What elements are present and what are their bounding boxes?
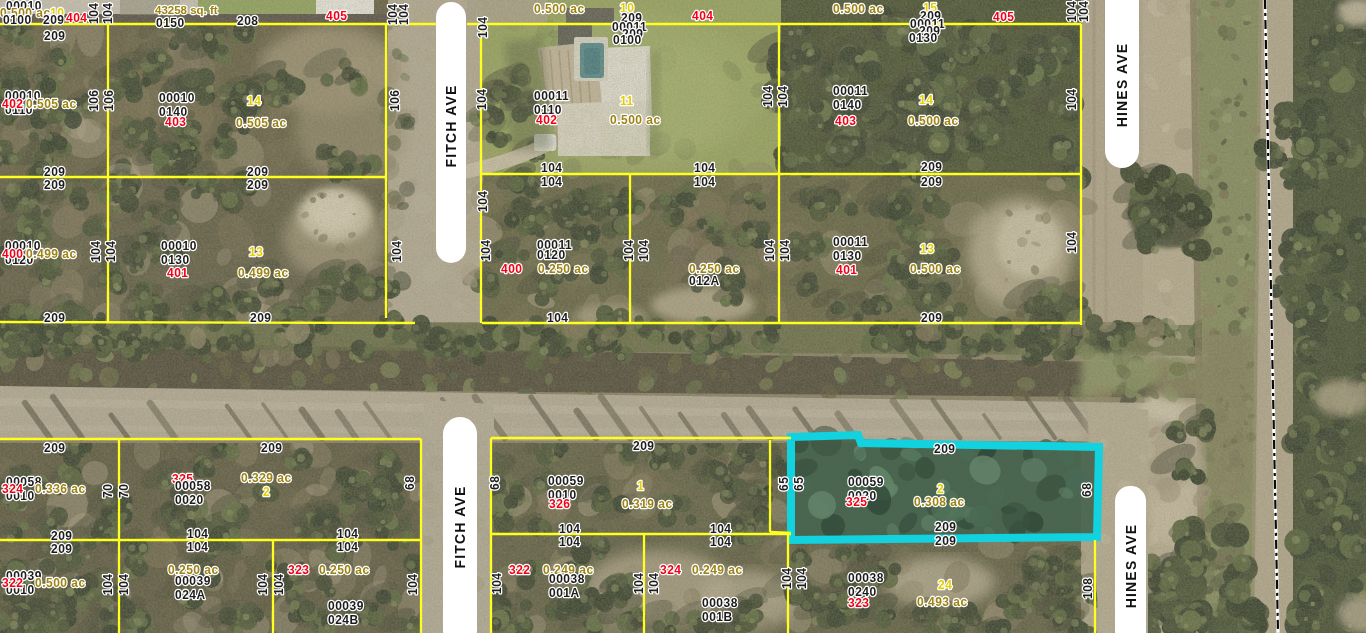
svg-text:001A: 001A xyxy=(549,586,580,600)
svg-text:13: 13 xyxy=(249,245,263,259)
svg-text:104: 104 xyxy=(337,527,359,541)
svg-text:405: 405 xyxy=(993,10,1015,24)
svg-text:104: 104 xyxy=(694,161,716,175)
svg-text:104: 104 xyxy=(710,535,732,549)
svg-text:0.505 ac: 0.505 ac xyxy=(236,116,287,130)
svg-text:209: 209 xyxy=(247,178,269,192)
svg-text:403: 403 xyxy=(835,114,857,128)
svg-text:104: 104 xyxy=(476,190,490,212)
svg-text:401: 401 xyxy=(836,263,858,277)
svg-text:209: 209 xyxy=(44,165,66,179)
svg-text:324: 324 xyxy=(2,482,24,496)
svg-text:65: 65 xyxy=(777,477,791,491)
svg-text:0.500 ac: 0.500 ac xyxy=(908,114,959,128)
svg-text:104: 104 xyxy=(647,572,661,594)
svg-text:0.500 ac: 0.500 ac xyxy=(534,2,585,16)
svg-text:104: 104 xyxy=(1065,88,1079,110)
svg-text:0.250 ac: 0.250 ac xyxy=(319,563,370,577)
svg-text:68: 68 xyxy=(1080,483,1094,497)
svg-text:104: 104 xyxy=(490,572,504,594)
svg-text:00038: 00038 xyxy=(848,571,884,585)
svg-text:001B: 001B xyxy=(702,610,733,624)
svg-text:14: 14 xyxy=(919,93,933,107)
svg-text:404: 404 xyxy=(692,9,714,23)
svg-text:024B: 024B xyxy=(328,613,359,627)
svg-text:0100: 0100 xyxy=(3,13,32,27)
svg-text:104: 104 xyxy=(479,239,493,261)
svg-text:70: 70 xyxy=(101,484,115,498)
svg-text:11: 11 xyxy=(620,94,634,108)
svg-text:404: 404 xyxy=(66,11,88,25)
svg-text:00011: 00011 xyxy=(534,89,569,103)
svg-text:70: 70 xyxy=(117,484,131,498)
svg-text:322: 322 xyxy=(509,563,531,577)
svg-text:0.505 ac: 0.505 ac xyxy=(26,97,77,111)
svg-text:323: 323 xyxy=(288,563,310,577)
svg-text:00039: 00039 xyxy=(175,574,211,588)
svg-text:104: 104 xyxy=(1065,231,1079,253)
svg-text:0.250 ac: 0.250 ac xyxy=(538,262,589,276)
svg-text:00010: 00010 xyxy=(161,239,197,253)
svg-text:209: 209 xyxy=(43,13,65,27)
svg-text:325: 325 xyxy=(846,495,868,509)
svg-text:104: 104 xyxy=(632,572,646,594)
svg-text:209: 209 xyxy=(633,439,655,453)
svg-text:68: 68 xyxy=(488,476,502,490)
svg-text:209: 209 xyxy=(250,311,272,325)
svg-text:0.493 ac: 0.493 ac xyxy=(917,595,968,609)
svg-text:2: 2 xyxy=(937,482,944,496)
svg-text:0120: 0120 xyxy=(537,248,566,262)
svg-text:209: 209 xyxy=(261,441,283,455)
svg-text:403: 403 xyxy=(165,115,187,129)
svg-text:0.499 ac: 0.499 ac xyxy=(238,266,289,280)
svg-text:326: 326 xyxy=(549,497,571,511)
svg-text:0.500 ac: 0.500 ac xyxy=(833,2,884,16)
svg-text:104: 104 xyxy=(763,239,777,261)
svg-text:0.329 ac: 0.329 ac xyxy=(241,471,292,485)
svg-text:104: 104 xyxy=(475,88,489,110)
svg-text:209: 209 xyxy=(247,165,269,179)
svg-text:0100: 0100 xyxy=(613,33,642,47)
svg-text:402: 402 xyxy=(2,97,24,111)
svg-text:400: 400 xyxy=(2,247,24,261)
svg-text:104: 104 xyxy=(547,311,569,325)
svg-text:104: 104 xyxy=(637,239,651,261)
svg-text:400: 400 xyxy=(501,262,523,276)
svg-text:104: 104 xyxy=(1077,0,1091,22)
svg-text:108: 108 xyxy=(1081,577,1095,599)
svg-text:0.336 ac: 0.336 ac xyxy=(35,482,86,496)
svg-text:104: 104 xyxy=(187,527,209,541)
svg-text:209: 209 xyxy=(51,529,73,543)
svg-text:323: 323 xyxy=(848,596,870,610)
svg-text:104: 104 xyxy=(541,175,563,189)
svg-text:0.499 ac: 0.499 ac xyxy=(26,247,77,261)
svg-text:0140: 0140 xyxy=(833,98,862,112)
svg-text:104: 104 xyxy=(104,240,118,262)
svg-text:104: 104 xyxy=(761,85,775,107)
svg-text:104: 104 xyxy=(187,540,209,554)
svg-text:0.249 ac: 0.249 ac xyxy=(692,563,743,577)
svg-text:209: 209 xyxy=(921,175,943,189)
svg-text:0.308 ac: 0.308 ac xyxy=(914,495,965,509)
svg-text:012A: 012A xyxy=(689,274,720,288)
svg-text:024A: 024A xyxy=(175,588,206,602)
svg-text:0020: 0020 xyxy=(175,493,204,507)
svg-text:0150: 0150 xyxy=(156,16,185,30)
svg-text:209: 209 xyxy=(44,311,66,325)
svg-text:209: 209 xyxy=(44,441,66,455)
svg-text:104: 104 xyxy=(622,239,636,261)
svg-text:104: 104 xyxy=(101,573,115,595)
svg-text:324: 324 xyxy=(660,563,682,577)
svg-text:104: 104 xyxy=(476,16,490,38)
svg-text:104: 104 xyxy=(337,540,359,554)
svg-text:104: 104 xyxy=(397,3,411,25)
svg-text:209: 209 xyxy=(44,178,66,192)
svg-text:00038: 00038 xyxy=(549,572,585,586)
svg-text:00011: 00011 xyxy=(833,84,868,98)
svg-text:209: 209 xyxy=(934,442,956,456)
svg-text:104: 104 xyxy=(778,239,792,261)
svg-text:209: 209 xyxy=(921,311,943,325)
svg-text:00059: 00059 xyxy=(548,474,584,488)
svg-text:209: 209 xyxy=(921,160,943,174)
svg-text:00059: 00059 xyxy=(848,475,884,489)
svg-text:0130: 0130 xyxy=(909,31,938,45)
svg-text:2: 2 xyxy=(263,485,270,499)
svg-text:FITCH AVE: FITCH AVE xyxy=(452,485,468,568)
svg-text:65: 65 xyxy=(792,477,806,491)
svg-text:HINES AVE: HINES AVE xyxy=(1114,43,1130,128)
svg-text:106: 106 xyxy=(87,89,101,111)
svg-text:104: 104 xyxy=(795,567,809,589)
svg-text:0.500 ac: 0.500 ac xyxy=(35,576,86,590)
svg-text:104: 104 xyxy=(87,2,101,24)
svg-text:106: 106 xyxy=(388,89,402,111)
svg-text:0.500 ac: 0.500 ac xyxy=(910,262,961,276)
svg-text:104: 104 xyxy=(101,2,115,24)
svg-text:1: 1 xyxy=(637,479,644,493)
svg-text:104: 104 xyxy=(117,573,131,595)
svg-text:0.319 ac: 0.319 ac xyxy=(622,497,673,511)
svg-text:104: 104 xyxy=(541,161,563,175)
svg-text:104: 104 xyxy=(559,535,581,549)
svg-text:104: 104 xyxy=(272,573,286,595)
svg-text:402: 402 xyxy=(536,113,558,127)
svg-text:00011: 00011 xyxy=(833,235,868,249)
svg-text:104: 104 xyxy=(256,573,270,595)
svg-text:00058: 00058 xyxy=(175,479,211,493)
svg-text:104: 104 xyxy=(710,522,732,536)
svg-text:0130: 0130 xyxy=(833,249,862,263)
svg-text:104: 104 xyxy=(89,240,103,262)
svg-text:104: 104 xyxy=(406,573,420,595)
svg-text:104: 104 xyxy=(694,175,716,189)
svg-text:00038: 00038 xyxy=(702,596,738,610)
svg-text:401: 401 xyxy=(167,266,189,280)
svg-text:43258 sq. ft: 43258 sq. ft xyxy=(155,4,218,16)
svg-text:106: 106 xyxy=(102,89,116,111)
svg-text:209: 209 xyxy=(935,534,957,548)
svg-text:405: 405 xyxy=(326,9,348,23)
svg-text:14: 14 xyxy=(247,94,261,108)
svg-text:104: 104 xyxy=(559,522,581,536)
svg-text:322: 322 xyxy=(2,576,24,590)
svg-text:209: 209 xyxy=(51,542,73,556)
svg-text:209: 209 xyxy=(935,520,957,534)
svg-text:HINES AVE: HINES AVE xyxy=(1123,524,1139,609)
svg-text:0130: 0130 xyxy=(161,253,190,267)
svg-text:0.500 ac: 0.500 ac xyxy=(610,113,661,127)
svg-text:00010: 00010 xyxy=(159,91,195,105)
svg-text:13: 13 xyxy=(920,242,934,256)
svg-text:208: 208 xyxy=(237,14,259,28)
svg-text:24: 24 xyxy=(938,578,952,592)
svg-text:104: 104 xyxy=(780,567,794,589)
svg-text:68: 68 xyxy=(403,476,417,490)
svg-text:104: 104 xyxy=(776,85,790,107)
svg-text:00039: 00039 xyxy=(328,599,364,613)
svg-text:209: 209 xyxy=(44,29,66,43)
svg-text:104: 104 xyxy=(390,240,404,262)
svg-text:FITCH AVE: FITCH AVE xyxy=(443,84,459,167)
